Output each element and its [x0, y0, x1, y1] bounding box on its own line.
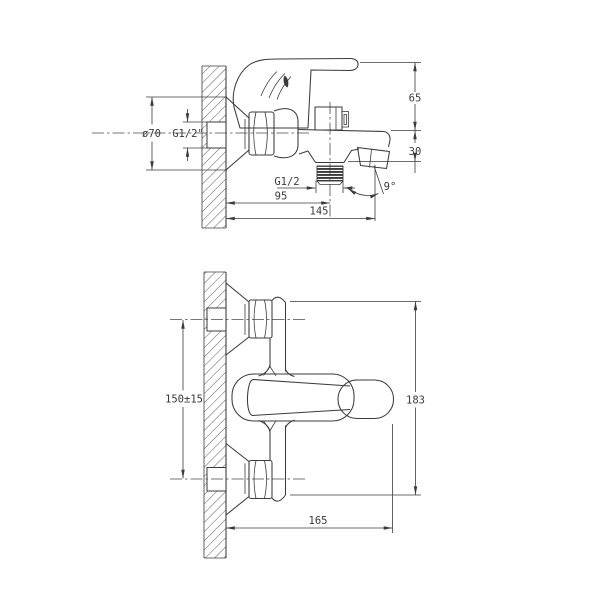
dim-overall-height: 183 [290, 302, 425, 496]
dim-inlet-spacing: 150±15 [165, 320, 203, 479]
dim-label-height-65: 65 [409, 93, 422, 105]
dim-label-outlet-thread: G1/2 [274, 176, 299, 188]
escutcheon-side [226, 97, 249, 170]
dim-overall-depth: 145 [226, 206, 375, 219]
dim-label-overall-height: 183 [406, 395, 425, 407]
dim-label-overall-width: 165 [309, 515, 328, 527]
wall-section-side [202, 66, 226, 228]
wall-pipe-nipple [207, 122, 226, 148]
dim-label-overall-depth: 145 [310, 206, 329, 218]
technical-drawing-page: ø70 G1/2" 65 30 [0, 0, 600, 600]
side-view: ø70 G1/2" 65 30 [92, 59, 421, 229]
mixer-body-column [259, 297, 295, 501]
wall-section-front [204, 272, 226, 558]
lever-handle-side [233, 59, 358, 129]
lever-handle-front [232, 374, 394, 421]
dim-label-flange-diameter: ø70 [142, 128, 161, 140]
front-view: 150±15 183 165 [165, 272, 425, 558]
dim-outlet-offset: 95 [226, 191, 330, 204]
dim-label-outlet-offset: 95 [275, 191, 288, 203]
dim-label-wall-thread: G1/2" [172, 128, 204, 140]
spout-tip [358, 148, 390, 169]
dim-overall-width: 165 [226, 424, 393, 533]
dim-spout-angle: 9° [348, 165, 396, 221]
escutcheon-top [226, 283, 272, 355]
connection-nut-side [249, 112, 274, 155]
dim-label-spout-angle: 9° [384, 181, 397, 193]
dim-label-inlet-spacing: 150±15 [165, 394, 203, 406]
dim-label-spout-30: 30 [409, 146, 422, 158]
shower-outlet-thread [317, 166, 343, 185]
spout-body-side [298, 130, 390, 169]
diverter-knob [315, 107, 349, 130]
faucet-dimension-drawing: ø70 G1/2" 65 30 [0, 0, 600, 600]
